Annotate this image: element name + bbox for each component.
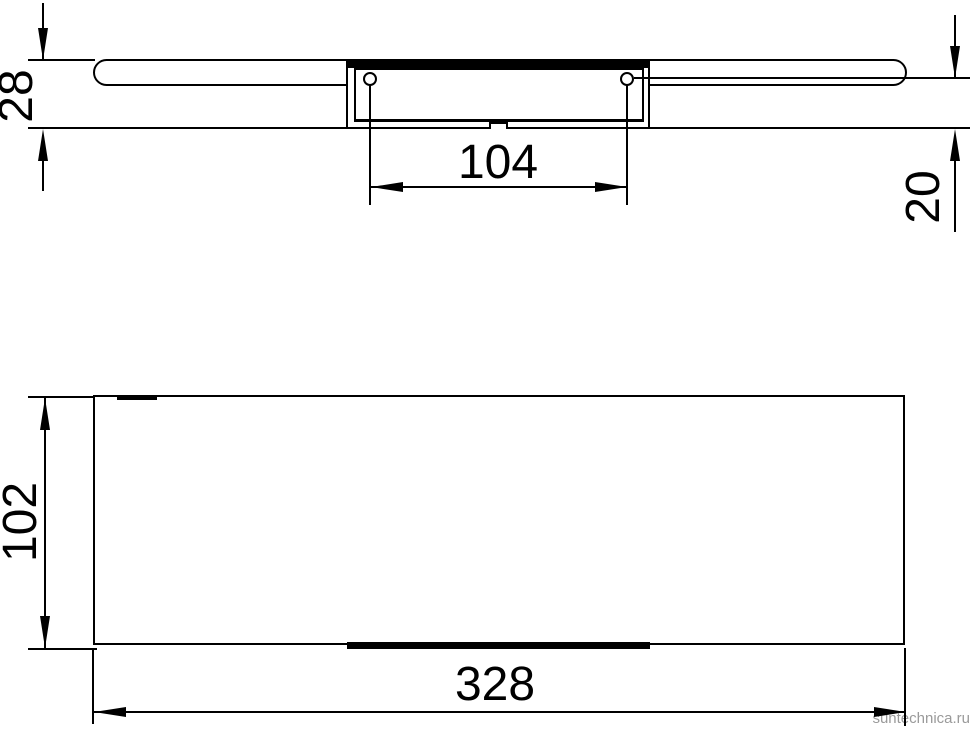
dim-328-label: 328 bbox=[425, 662, 565, 708]
center-notch bbox=[489, 122, 508, 129]
dim-102-arrow-top bbox=[40, 398, 50, 430]
dim-28-label: 28 bbox=[0, 61, 42, 131]
dim-28-leader-bottom bbox=[42, 161, 44, 191]
shelf-panel-outline bbox=[93, 395, 905, 645]
dim-104-label: 104 bbox=[438, 140, 558, 186]
mounting-strip-under-panel bbox=[347, 642, 650, 649]
dim-20-extension-line-top bbox=[634, 77, 970, 79]
mounting-plate-inner-outline bbox=[354, 68, 644, 122]
panel-top-edge-detail bbox=[117, 395, 157, 400]
dim-20-label: 20 bbox=[901, 162, 949, 232]
dim-102-label: 102 bbox=[0, 472, 46, 572]
dim-20-arrow-top bbox=[950, 46, 960, 78]
dim-28-arrow-top bbox=[38, 28, 48, 60]
dim-328-arrow-left bbox=[94, 707, 126, 717]
dim-102-arrow-bottom bbox=[40, 616, 50, 648]
dim-102-extension-line-bottom bbox=[28, 648, 97, 650]
dim-104-arrow-right bbox=[595, 182, 627, 192]
dim-20-arrow-bottom bbox=[950, 129, 960, 161]
dim-328-arrow-right bbox=[874, 707, 906, 717]
dim-28-arrow-bottom bbox=[38, 129, 48, 161]
dim-20-leader-bottom bbox=[954, 161, 956, 232]
drawing-canvas: 28 104 20 suntechnica.ru 102 bbox=[0, 0, 970, 729]
dim-104-arrow-left bbox=[371, 182, 403, 192]
dim-328-line bbox=[94, 711, 906, 713]
dim-102-extension-line-top bbox=[28, 396, 95, 398]
